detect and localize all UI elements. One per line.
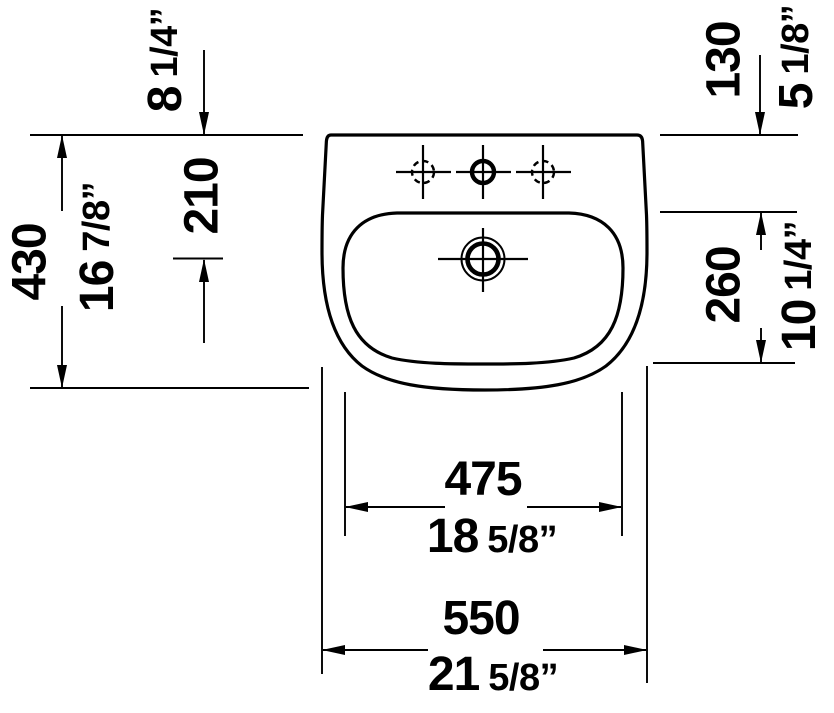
faucet-hole-center-icon	[456, 145, 511, 199]
sink-outline	[322, 135, 647, 390]
washbasin-dimension-drawing: 430 167/8” 81/4” 210 130 51/8” 260 101/4…	[0, 0, 834, 713]
dim-back-to-drain-mm: 210	[176, 157, 229, 234]
dim-overall-width-inch: 215/8”	[428, 648, 558, 701]
dimension-basin-depth: 260 101/4”	[653, 212, 826, 363]
dim-back-ledge-mm: 130	[698, 21, 751, 98]
dimension-overall-depth: 430 167/8”	[4, 135, 310, 388]
dim-overall-depth-inch: 167/8”	[71, 182, 124, 312]
dim-basin-width-inch: 185/8”	[427, 510, 557, 563]
dim-back-ledge-inch: 51/8”	[770, 5, 823, 110]
dim-basin-width-mm: 475	[444, 453, 521, 506]
arrow-up-icon	[756, 212, 766, 235]
arrow-down-icon	[755, 112, 765, 135]
technical-drawing-page: 430 167/8” 81/4” 210 130 51/8” 260 101/4…	[0, 0, 834, 713]
faucet-hole-right-icon	[516, 145, 571, 199]
dim-basin-depth-mm: 260	[698, 246, 751, 323]
dimension-back-ledge: 130 51/8”	[660, 5, 823, 135]
arrow-up-icon	[199, 259, 209, 282]
drain-icon	[438, 228, 528, 292]
arrow-down-icon	[199, 112, 209, 135]
arrow-right-icon	[599, 502, 622, 512]
arrow-left-icon	[345, 502, 368, 512]
dimension-back-to-drain: 81/4” 210	[139, 8, 229, 343]
washbasin	[322, 135, 647, 390]
dimension-overall-width: 550 215/8”	[322, 366, 647, 701]
arrow-down-icon	[756, 340, 766, 363]
arrow-left-icon	[322, 645, 345, 655]
arrow-up-icon	[57, 135, 67, 158]
faucet-hole-left-icon	[396, 145, 451, 199]
arrow-right-icon	[624, 645, 647, 655]
arrow-down-icon	[57, 365, 67, 388]
dim-basin-depth-inch: 101/4”	[773, 221, 826, 351]
dimension-basin-width: 475 185/8”	[345, 392, 622, 563]
dim-back-to-drain-inch: 81/4”	[139, 8, 192, 113]
dim-overall-width-mm: 550	[442, 592, 519, 645]
dim-overall-depth-mm: 430	[4, 223, 57, 300]
